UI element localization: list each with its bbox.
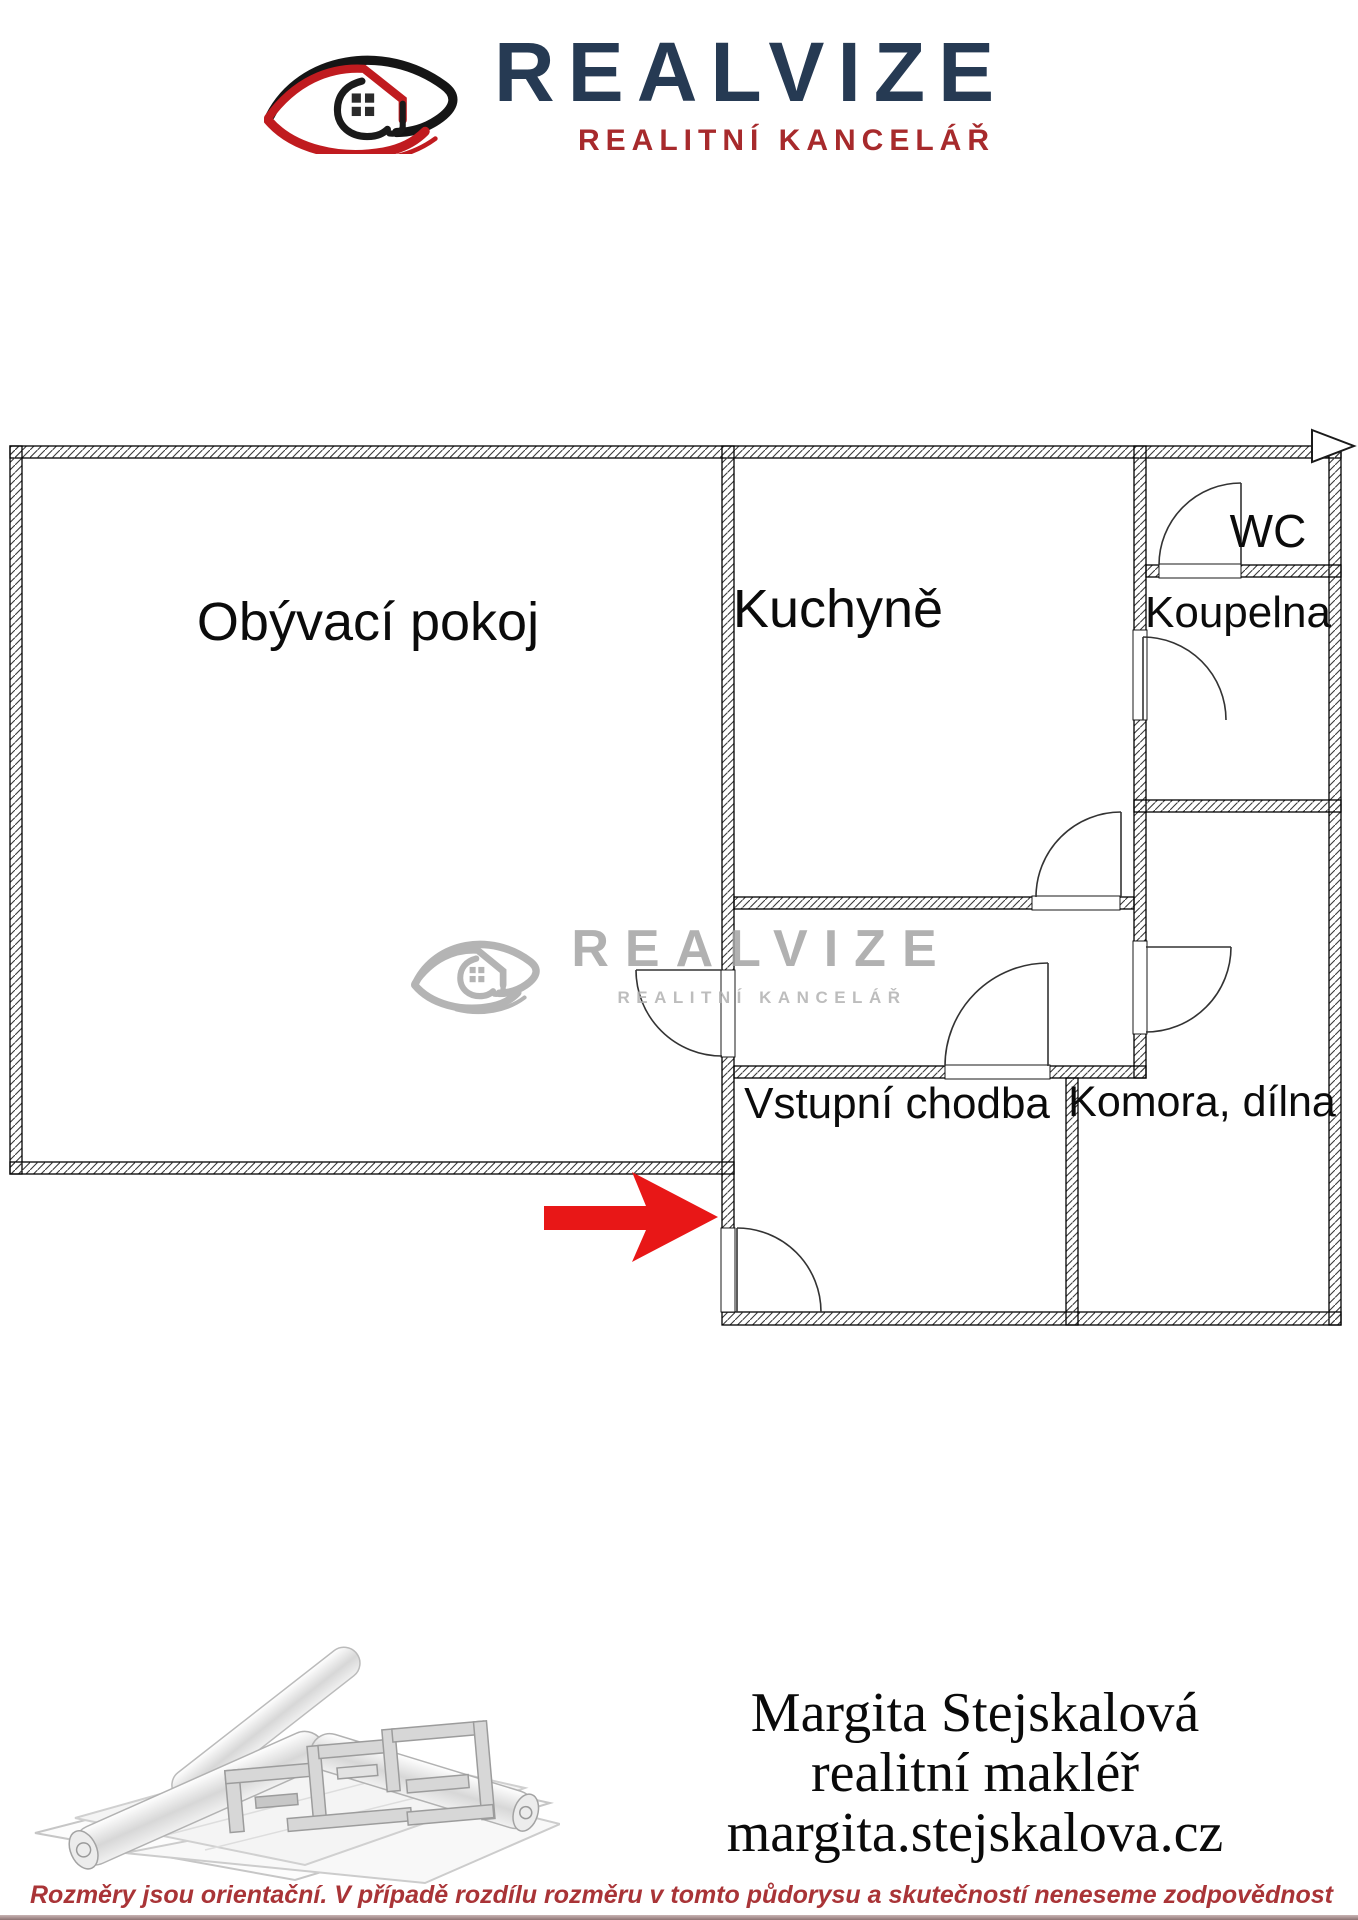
kitchen-door: [1036, 812, 1121, 897]
storage-door: [1146, 947, 1231, 1032]
agent-block: Margita Stejskalová realitní makléř marg…: [540, 1684, 1358, 1864]
blueprint-image: [5, 1628, 560, 1886]
opening-entrance-door: [721, 1228, 735, 1312]
hall-door: [945, 963, 1048, 1066]
room-label-storage: Komora, dílna: [1068, 1078, 1336, 1126]
bottom-strip: [0, 1915, 1358, 1920]
opening-bathroom-door: [1133, 630, 1147, 720]
agent-name: Margita Stejskalová: [540, 1684, 1358, 1744]
agent-website: margita.stejskalova.cz: [540, 1804, 1358, 1864]
entrance-arrow-icon: [544, 1172, 718, 1262]
bathroom-door: [1143, 637, 1226, 720]
watermark-eye-icon: [415, 944, 536, 1012]
wall-bottom: [722, 1312, 1341, 1325]
opening-hall-door: [945, 1065, 1050, 1079]
opening-wc-door: [1159, 564, 1241, 578]
living-room-door: [636, 970, 722, 1056]
wall-living-kitchen: [722, 446, 734, 1312]
room-label-living: Obývací pokoj: [197, 592, 539, 652]
opening-living-door: [721, 970, 735, 1057]
opening-storage-door: [1133, 941, 1147, 1034]
wall-bathroom-bottom: [1134, 800, 1341, 812]
entrance-door: [737, 1228, 821, 1312]
room-label-wc: WC: [1230, 505, 1307, 557]
wall-hall-top: [734, 1066, 1146, 1078]
watermark: REALVIZE REALITNÍ KANCELÁŘ: [415, 920, 953, 1012]
watermark-tagline: REALITNÍ KANCELÁŘ: [618, 988, 907, 1007]
disclaimer-text: Rozměry jsou orientační. V případě rozdí…: [30, 1881, 1333, 1910]
room-label-kitchen: Kuchyně: [733, 579, 943, 639]
watermark-brand: REALVIZE: [571, 920, 952, 978]
agent-role: realitní makléř: [540, 1744, 1358, 1804]
wall-living-bottom: [10, 1162, 734, 1174]
opening-kitchen-door: [1032, 896, 1120, 910]
flyer-page: REALVIZE REALITNÍ KANCELÁŘ: [0, 0, 1358, 1920]
wall-left: [10, 446, 22, 1174]
disclaimer-bar: Rozměry jsou orientační. V případě rozdí…: [0, 1876, 1358, 1915]
wall-right: [1329, 446, 1341, 1325]
room-label-hall: Vstupní chodba: [744, 1079, 1050, 1128]
room-label-bathroom: Koupelna: [1145, 588, 1331, 637]
